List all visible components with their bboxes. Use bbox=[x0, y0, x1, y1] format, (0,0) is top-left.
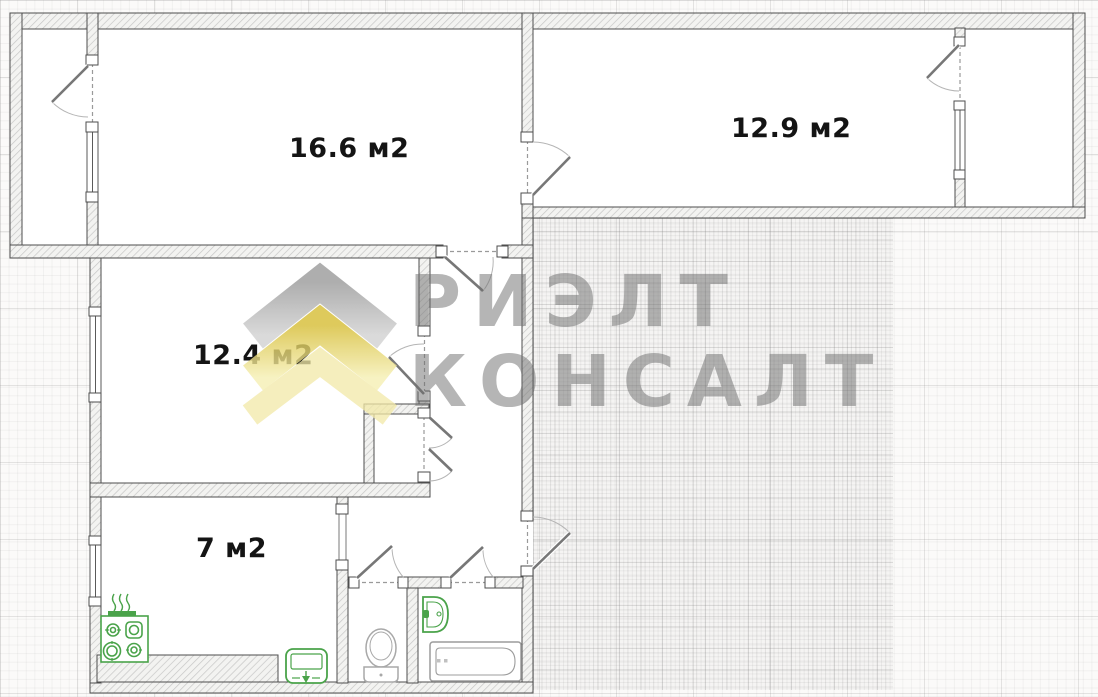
room-label-kitchen: 7 м2 bbox=[196, 533, 267, 564]
room-label-second-room: 12.4 м2 bbox=[193, 340, 313, 371]
bathtub-icon bbox=[430, 642, 521, 681]
balcony-right-window bbox=[955, 107, 965, 177]
floor-plan-canvas: 16.6 м2 12.9 м2 12.4 м2 7 м2 РИЭЛТ КОНСА… bbox=[0, 0, 1098, 697]
floor-plan-drawing bbox=[0, 0, 1098, 697]
kitchen-window bbox=[90, 542, 101, 602]
room-label-bedroom: 12.9 м2 bbox=[731, 113, 851, 144]
second-room-window bbox=[90, 313, 101, 398]
toilet-icon bbox=[364, 629, 398, 682]
washbasin-icon bbox=[423, 597, 448, 632]
apartment-outline bbox=[10, 13, 1085, 693]
kitchen-sink-icon bbox=[286, 649, 327, 683]
room-label-living-room: 16.6 м2 bbox=[289, 133, 409, 164]
balcony-left-window bbox=[87, 128, 98, 197]
